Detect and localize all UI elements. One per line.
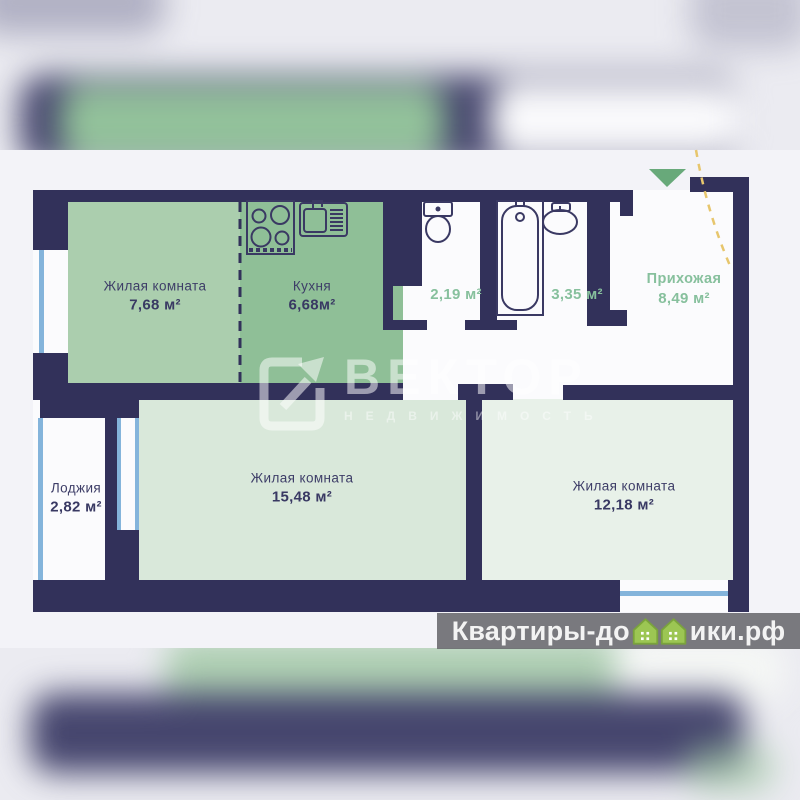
wall-kitchen-wc <box>383 198 422 286</box>
room-name: Жилая комната <box>251 471 354 486</box>
bottom-watermark-right: ики.рф <box>690 616 786 647</box>
wall-wc-bottom <box>393 320 427 330</box>
window-bottom-glass <box>620 591 728 596</box>
wall-mid-band-a <box>68 383 403 400</box>
room-name: Жилая комната <box>573 479 676 494</box>
room-name: Лоджия <box>50 481 102 496</box>
window-left-glass <box>39 250 44 353</box>
room-area: 3,35 м² <box>551 286 603 303</box>
label-loggia: Лоджия 2,82 м² <box>50 481 102 516</box>
entrance-arrow-icon <box>649 169 686 187</box>
label-living-2: Жилая комната 15,48 м² <box>251 471 354 506</box>
wall-entrance-stub <box>620 190 633 216</box>
wall-window-base <box>117 530 139 582</box>
label-living-3: Жилая комната 12,18 м² <box>573 479 676 514</box>
wall-mid-band-c <box>563 385 737 400</box>
room-area: 8,49 м² <box>647 290 722 307</box>
wall-wc-bath <box>480 198 497 330</box>
bottom-watermark-left: Квартиры-до <box>452 616 630 647</box>
floorplan-photo: Жилая комната 7,68 м² Кухня 6,68м² 2,19 … <box>0 0 800 800</box>
window-loggia-room-glass2 <box>135 418 139 530</box>
floorplan-drawing <box>0 0 800 800</box>
wall-kitchen-wc-thin <box>383 286 393 330</box>
wall-mid-band-b <box>458 384 513 400</box>
wall-bath-foot <box>587 310 627 326</box>
wall-bottom-right <box>728 580 749 612</box>
window-bottom <box>620 582 728 612</box>
wall-left-mid <box>33 353 68 400</box>
label-hallway: Прихожая 8,49 м² <box>647 271 722 307</box>
wall-left-top <box>33 190 68 250</box>
window-loggia-room-glass <box>117 418 121 530</box>
houses-icon <box>631 615 689 647</box>
wall-bottom <box>33 580 620 612</box>
room-area: 6,68м² <box>288 297 335 314</box>
label-living-1: Жилая комната 7,68 м² <box>104 279 207 314</box>
window-loggia-glass <box>38 418 43 580</box>
room-area: 12,18 м² <box>573 497 676 514</box>
label-bathroom: 3,35 м² <box>551 283 603 303</box>
room-name: Кухня <box>288 279 335 294</box>
room-area: 2,19 м² <box>430 286 482 303</box>
label-kitchen: Кухня 6,68м² <box>288 279 335 314</box>
room-name: Жилая комната <box>104 279 207 294</box>
wall-room-divider <box>466 399 482 582</box>
wall-loggia-column <box>105 396 117 582</box>
room-area: 15,48 м² <box>251 489 354 506</box>
bottom-watermark-bar: Квартиры-до ики.рф <box>437 613 800 649</box>
room-area: 7,68 м² <box>104 297 207 314</box>
wall-bath-bottom <box>465 320 517 330</box>
room-area: 2,82 м² <box>50 499 102 516</box>
room-name: Прихожая <box>647 271 722 287</box>
label-wc: 2,19 м² <box>430 283 482 303</box>
